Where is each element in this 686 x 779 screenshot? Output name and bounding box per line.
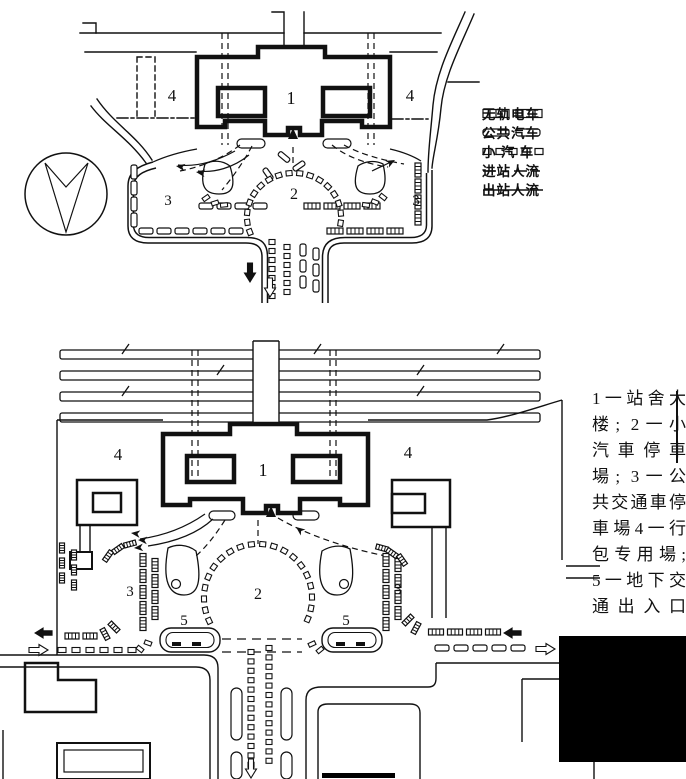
legend-row-entering-flow: 进站人流	[482, 163, 662, 177]
legend: 无轨电车 公共汽车 小 汽 车 进站人流	[482, 106, 662, 201]
caption-line: 楼; 2一小	[592, 412, 686, 438]
north-compass-icon	[25, 153, 107, 235]
label-bottom-car-park: 2	[254, 586, 262, 603]
caption-line: 車場4一行	[592, 516, 686, 542]
figure-page: 1 4 4 2 3 3 无轨电车 公共汽车	[0, 0, 686, 779]
label-bottom-transit-left: 3	[126, 584, 134, 600]
label-underground-right: 5	[342, 613, 350, 629]
redaction-box	[559, 636, 686, 762]
label-bottom-station-building: 1	[259, 460, 268, 480]
legend-row-exiting-flow: 出站人流	[482, 182, 662, 196]
bus-icon	[482, 126, 544, 139]
legend-row-bus: 公共汽车	[482, 125, 662, 139]
legend-row-trolleybus: 无轨电车	[482, 106, 662, 120]
label-top-car-park: 2	[290, 186, 298, 203]
bottom-exiting-flows	[140, 514, 213, 546]
label-top-baggage-right: 4	[406, 86, 415, 105]
caption-line: 5一地下交	[592, 568, 686, 594]
caption-line: 共交通車停	[592, 490, 686, 516]
railway-tracks	[60, 344, 540, 422]
label-top-station-building: 1	[287, 88, 296, 108]
label-top-transit-right: 3	[412, 193, 420, 209]
dashed-flow-icon	[482, 164, 544, 177]
figure-caption: 1一站舍大 楼; 2一小 汽車停車 場; 3一公 共交通車停 車場4一行 包专用…	[592, 386, 686, 620]
label-top-transit-left: 3	[164, 193, 172, 209]
legend-row-car: 小 汽 车	[482, 144, 662, 158]
top-vehicle-symbols	[131, 151, 421, 299]
label-top-baggage-left: 4	[168, 86, 177, 105]
caption-line: 汽車停車	[592, 438, 686, 464]
caption-line: 場; 3一公	[592, 464, 686, 490]
label-underground-left: 5	[180, 613, 188, 629]
caption-line: 1一站舍大	[592, 386, 686, 412]
trolleybus-icon	[482, 107, 544, 120]
caption-rule	[676, 391, 678, 463]
solid-flow-icon	[482, 183, 544, 196]
label-bottom-baggage-left: 4	[114, 445, 123, 464]
car-icon	[482, 145, 544, 158]
caption-line: 包专用場;	[592, 542, 686, 568]
label-bottom-transit-right: 3	[394, 582, 402, 598]
caption-line: 通出入口	[592, 594, 686, 620]
top-plan-figure: 1 4 4 2 3 3	[0, 0, 560, 332]
scale-bar	[322, 773, 395, 778]
label-bottom-baggage-right: 4	[404, 443, 413, 462]
bottom-plan-figure: 1 4 4 2 3 3 5 5	[0, 330, 600, 779]
